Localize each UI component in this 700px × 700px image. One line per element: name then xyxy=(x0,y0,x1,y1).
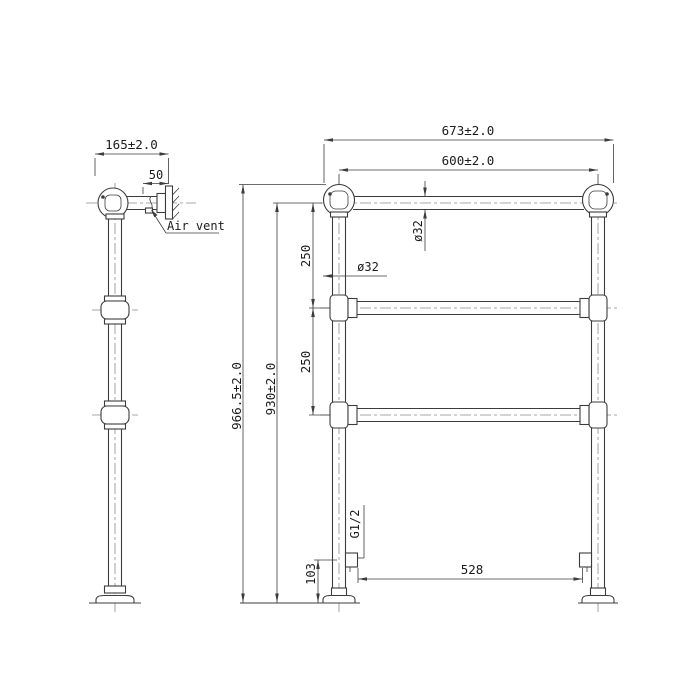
side-view: 165±2.0 50 Air vent xyxy=(86,137,225,612)
side-view-wall-bracket xyxy=(121,186,179,219)
dim-overall-height-label: 966.5±2.0 xyxy=(229,362,244,430)
dim-bracket-depth: 50 xyxy=(143,168,169,194)
valve-inlet-right xyxy=(580,553,592,572)
valve-inlet-left xyxy=(346,553,358,572)
dim-lower-rail-gap: 250 xyxy=(298,308,330,415)
side-view-base-flange xyxy=(89,586,141,603)
towel-rail-drawing: 165±2.0 50 Air vent xyxy=(0,0,700,700)
dim-overall-width-label: 673±2.0 xyxy=(442,123,495,138)
dim-valve-height-label: 103 xyxy=(304,563,318,585)
dim-bracket-depth-label: 50 xyxy=(149,168,163,182)
dim-wall-distance-label: 165±2.0 xyxy=(105,137,158,152)
front-view-base-flange-right xyxy=(582,588,614,603)
dim-top-rail-height-label: 930±2.0 xyxy=(263,363,278,416)
dim-valve-centers: 528 xyxy=(358,562,583,583)
front-view-corner-ball-left xyxy=(324,185,355,218)
valve-thread-label: G1/2 xyxy=(348,510,362,539)
dim-upper-rail-gap: 250 xyxy=(298,203,330,308)
dim-post-centers: 600±2.0 xyxy=(339,153,598,184)
front-view-centerlines xyxy=(320,183,618,612)
side-view-elbow-ball xyxy=(98,188,128,219)
wall-flange xyxy=(166,186,173,219)
side-view-coupling-upper xyxy=(101,296,129,324)
side-view-centerlines xyxy=(86,183,196,612)
technical-drawing-sheet: 165±2.0 50 Air vent xyxy=(0,0,700,700)
dim-upper-rail-gap-label: 250 xyxy=(298,245,313,268)
front-view-base-flange-left xyxy=(323,588,355,603)
front-view-corner-ball-right xyxy=(583,185,614,218)
air-vent-label: Air vent xyxy=(167,219,225,233)
front-view: 673±2.0 600±2.0 966.5±2.0 930±2.0 xyxy=(229,123,618,612)
dim-valve-centers-label: 528 xyxy=(461,562,484,577)
wall-hatching xyxy=(173,188,180,219)
dim-rail-diameter-label: ø32 xyxy=(411,220,425,242)
dim-post-diameter-label: ø32 xyxy=(357,260,379,274)
dim-lower-rail-gap-label: 250 xyxy=(298,351,313,374)
side-view-coupling-lower xyxy=(101,401,129,429)
dim-post-centers-label: 600±2.0 xyxy=(442,153,495,168)
dim-rail-diameter: ø32 xyxy=(411,181,427,251)
valve-thread-callout: G1/2 xyxy=(348,505,364,558)
